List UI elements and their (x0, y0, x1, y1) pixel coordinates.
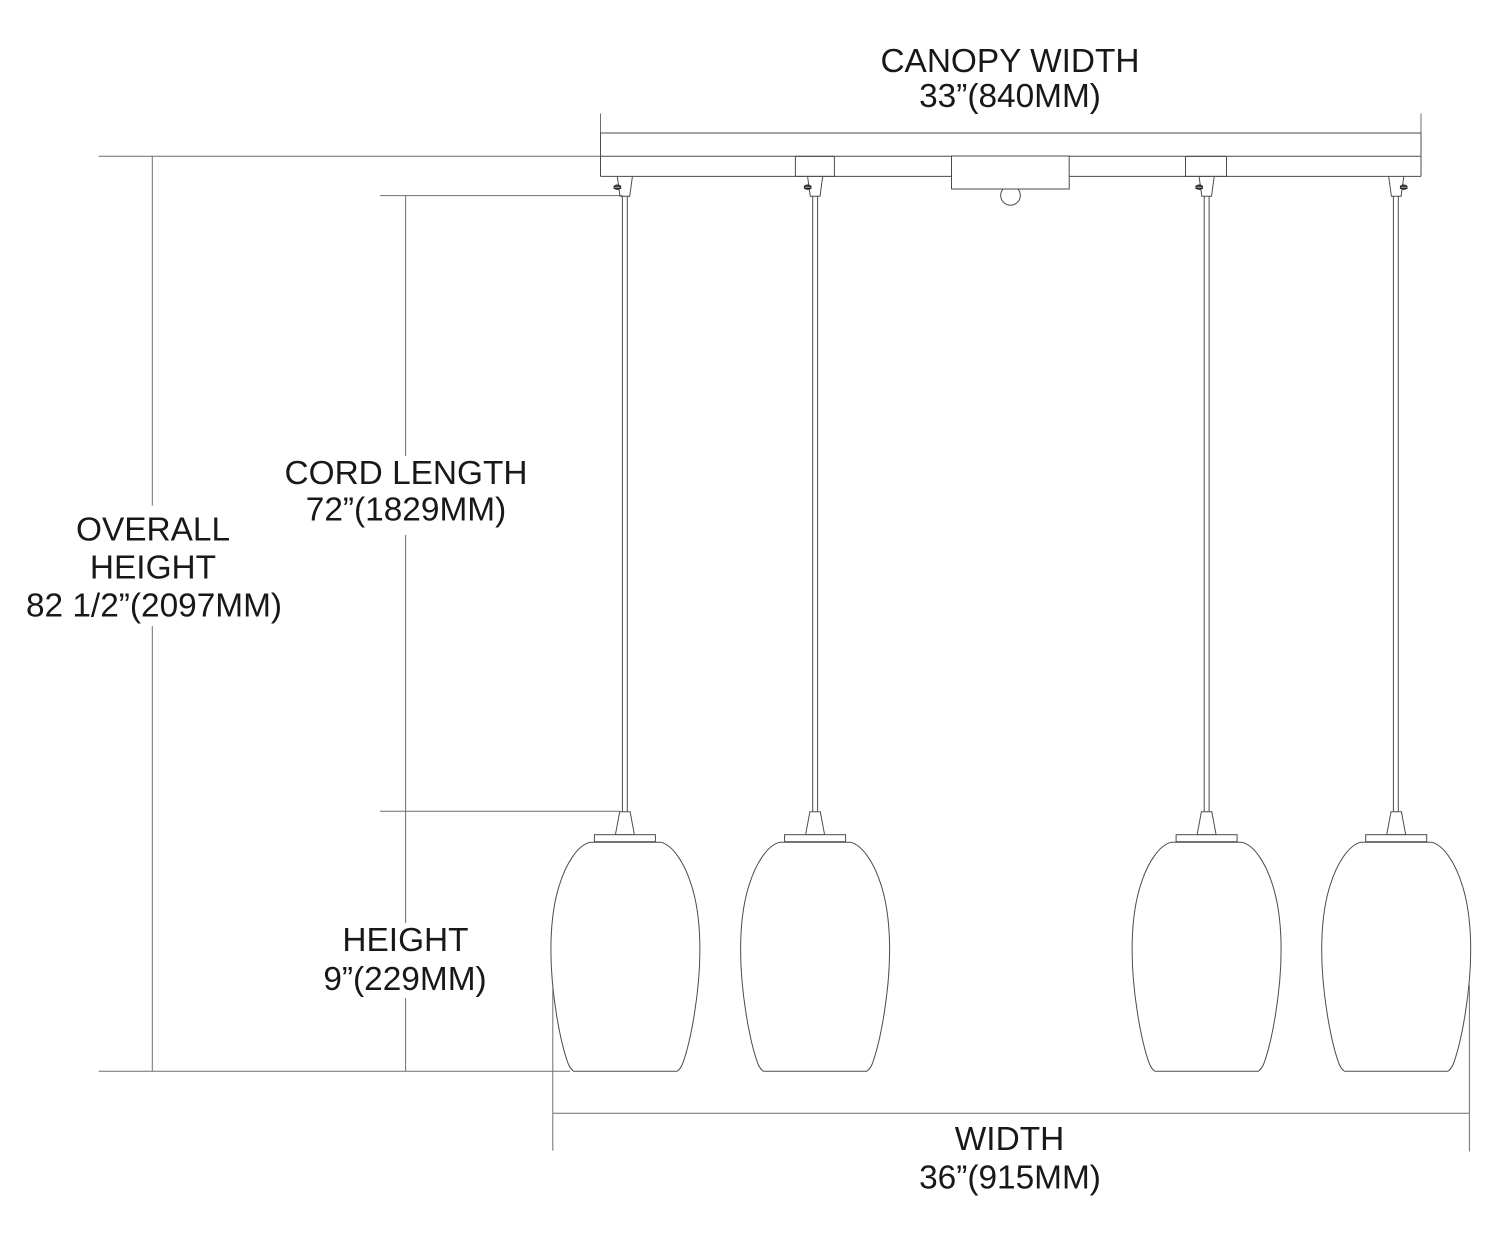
svg-text:33”(840MM): 33”(840MM) (919, 78, 1101, 115)
svg-text:72”(1829MM): 72”(1829MM) (306, 492, 506, 529)
svg-text:82 1/2”(2097MM): 82 1/2”(2097MM) (26, 588, 282, 625)
svg-text:OVERALL: OVERALL (76, 512, 230, 549)
svg-text:9”(229MM): 9”(229MM) (323, 961, 486, 998)
svg-text:HEIGHT: HEIGHT (90, 550, 216, 587)
svg-text:HEIGHT: HEIGHT (342, 922, 468, 959)
svg-text:36”(915MM): 36”(915MM) (919, 1160, 1101, 1197)
svg-text:WIDTH: WIDTH (955, 1121, 1064, 1158)
svg-text:CORD LENGTH: CORD LENGTH (284, 455, 527, 492)
svg-text:CANOPY WIDTH: CANOPY WIDTH (880, 43, 1139, 80)
